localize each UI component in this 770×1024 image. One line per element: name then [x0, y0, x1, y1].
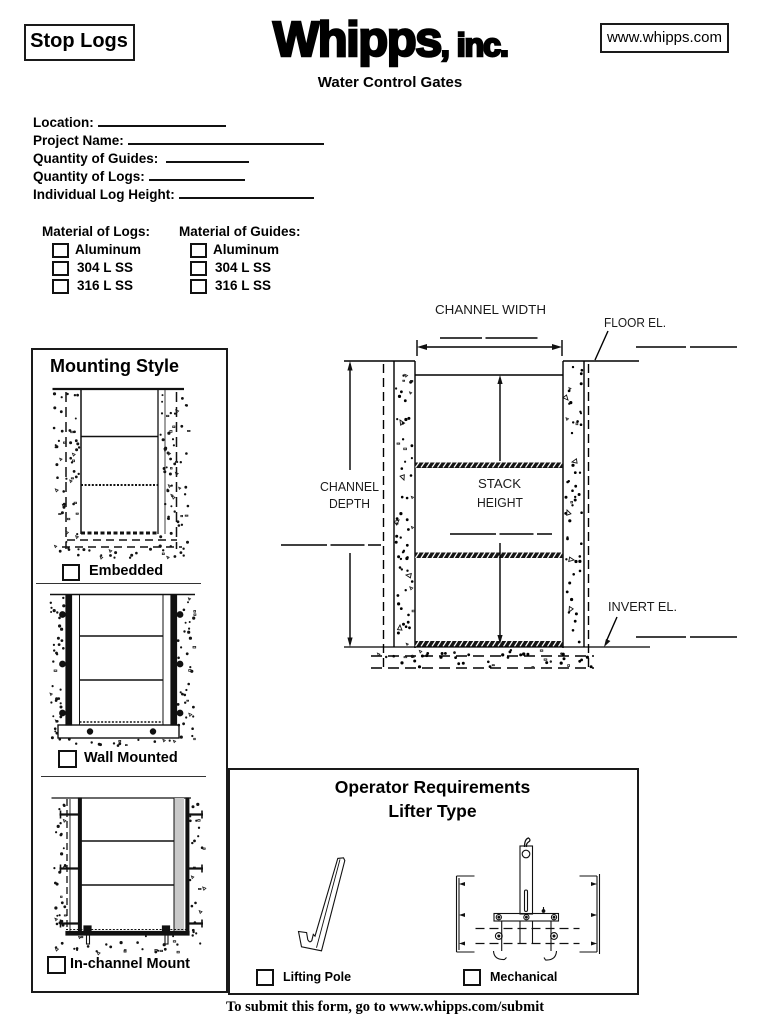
svg-text:FLOOR EL.: FLOOR EL.	[604, 316, 666, 330]
svg-text:CHANNEL WIDTH: CHANNEL WIDTH	[435, 302, 546, 317]
svg-text:HEIGHT: HEIGHT	[477, 496, 523, 510]
svg-text:CHANNEL: CHANNEL	[320, 480, 379, 494]
svg-text:STACK: STACK	[478, 477, 522, 491]
svg-text:DEPTH: DEPTH	[329, 497, 370, 511]
svg-text:INVERT EL.: INVERT EL.	[608, 600, 677, 614]
